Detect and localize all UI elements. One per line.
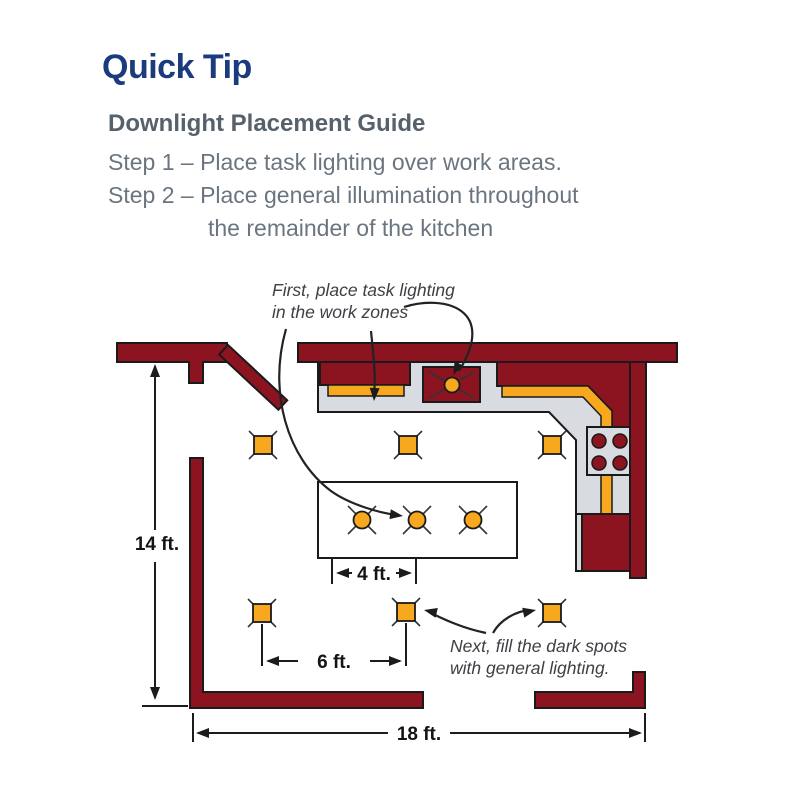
island-task-light xyxy=(354,512,371,529)
task-note-line1: First, place task lighting xyxy=(272,280,455,300)
dim-label-4ft: 4 ft. xyxy=(357,564,391,585)
general-light xyxy=(543,436,561,454)
left-task-light-strip xyxy=(328,385,404,396)
left-cabinet xyxy=(320,362,410,385)
burner xyxy=(592,434,606,448)
general-note-line2: with general lighting. xyxy=(450,658,610,678)
general-light xyxy=(543,604,561,622)
general-light xyxy=(254,436,272,454)
dim-label-14ft: 14 ft. xyxy=(135,534,179,555)
general-light xyxy=(399,436,417,454)
general-note-line1: Next, fill the dark spots xyxy=(450,636,627,656)
burner xyxy=(592,456,606,470)
door-open-diagonal xyxy=(219,345,287,410)
sink-task-light xyxy=(445,378,460,393)
annotations: First, place task lighting in the work z… xyxy=(272,280,627,678)
kitchen-floorplan-diagram: 14 ft. 4 ft. 6 ft. 18 ft. xyxy=(0,0,800,800)
refrigerator xyxy=(582,514,630,571)
dimension-14ft: 14 ft. xyxy=(135,364,188,706)
dimension-18ft: 18 ft. xyxy=(193,713,645,745)
island-task-light xyxy=(465,512,482,529)
wall-top xyxy=(298,343,677,362)
task-note-line2: in the work zones xyxy=(272,302,408,322)
general-light xyxy=(397,603,415,621)
wall-top-left xyxy=(117,343,227,383)
burner xyxy=(613,434,627,448)
island-task-light xyxy=(409,512,426,529)
general-light xyxy=(253,604,271,622)
burner xyxy=(613,456,627,470)
dimension-4ft: 4 ft. xyxy=(332,559,416,585)
dim-label-6ft: 6 ft. xyxy=(317,652,351,673)
dimension-6ft: 6 ft. xyxy=(262,623,406,673)
wall-right xyxy=(630,362,646,578)
dim-label-18ft: 18 ft. xyxy=(397,724,441,745)
counters xyxy=(318,362,630,571)
